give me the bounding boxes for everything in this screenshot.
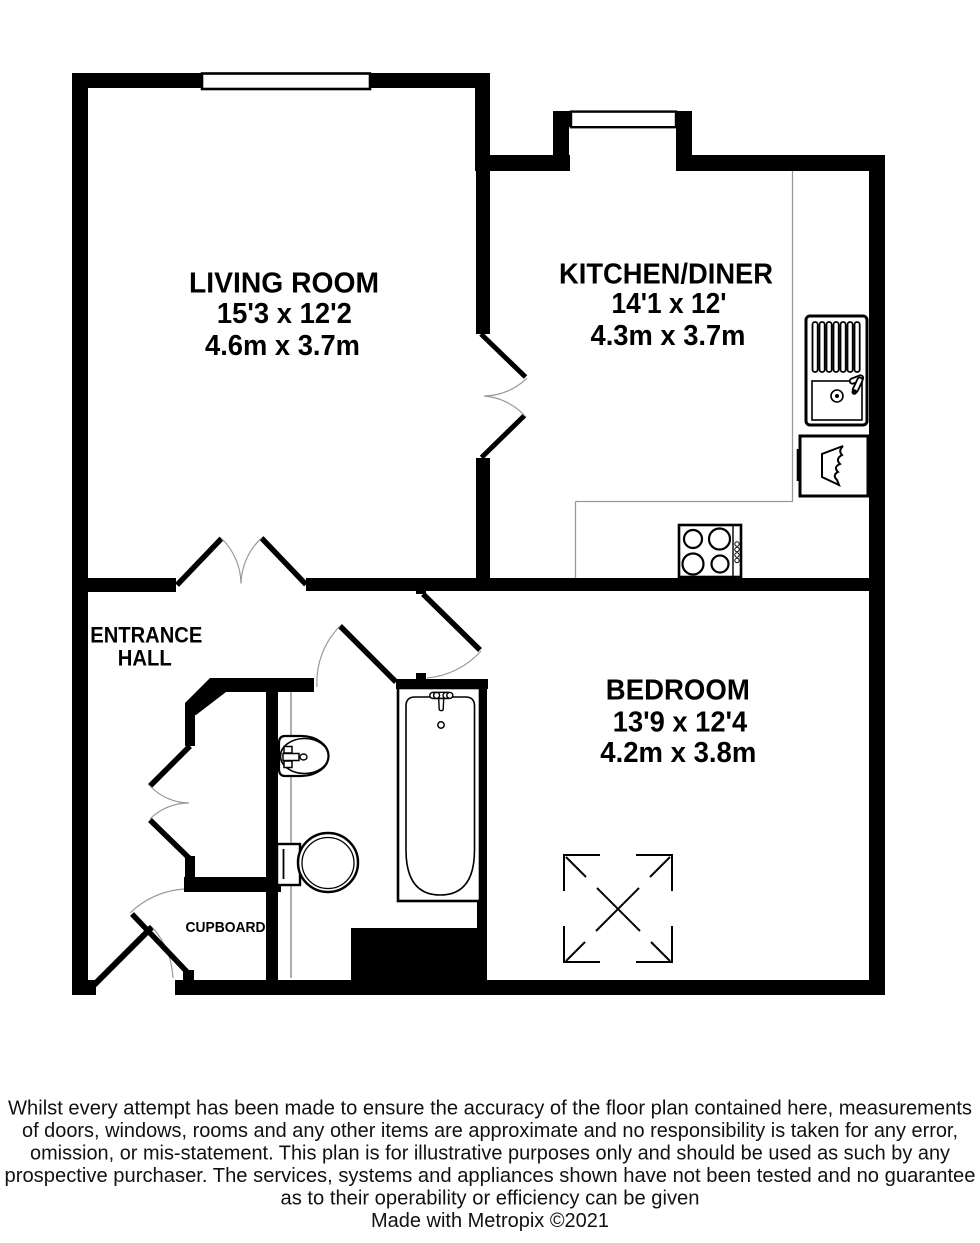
svg-text:as to their operability or eff: as to their operability or efficiency ca… — [281, 1188, 700, 1210]
svg-text:Whilst every attempt has been: Whilst every attempt has been made to en… — [8, 1098, 972, 1120]
svg-text:of doors, windows, rooms and a: of doors, windows, rooms and any other i… — [22, 1120, 958, 1142]
svg-text:omission, or mis-statement. Th: omission, or mis-statement. This plan is… — [30, 1143, 950, 1165]
svg-text:prospective purchaser. The ser: prospective purchaser. The services, sys… — [5, 1165, 976, 1187]
svg-text:LIVING ROOM: LIVING ROOM — [189, 268, 379, 300]
svg-text:4.3m x 3.7m: 4.3m x 3.7m — [591, 320, 746, 352]
svg-text:KITCHEN/DINER: KITCHEN/DINER — [559, 259, 773, 291]
svg-text:CUPBOARD: CUPBOARD — [186, 919, 266, 936]
svg-text:4.6m x 3.7m: 4.6m x 3.7m — [205, 330, 360, 362]
svg-text:15'3 x 12'2: 15'3 x 12'2 — [217, 298, 352, 330]
svg-text:Made with Metropix ©2021: Made with Metropix ©2021 — [371, 1210, 609, 1232]
svg-text:HALL: HALL — [118, 646, 172, 671]
svg-text:13'9 x 12'4: 13'9 x 12'4 — [613, 707, 748, 739]
svg-text:BEDROOM: BEDROOM — [606, 675, 750, 707]
svg-text:ENTRANCE: ENTRANCE — [90, 622, 202, 647]
svg-text:4.2m x 3.8m: 4.2m x 3.8m — [600, 737, 756, 769]
svg-text:14'1 x 12': 14'1 x 12' — [612, 288, 727, 320]
